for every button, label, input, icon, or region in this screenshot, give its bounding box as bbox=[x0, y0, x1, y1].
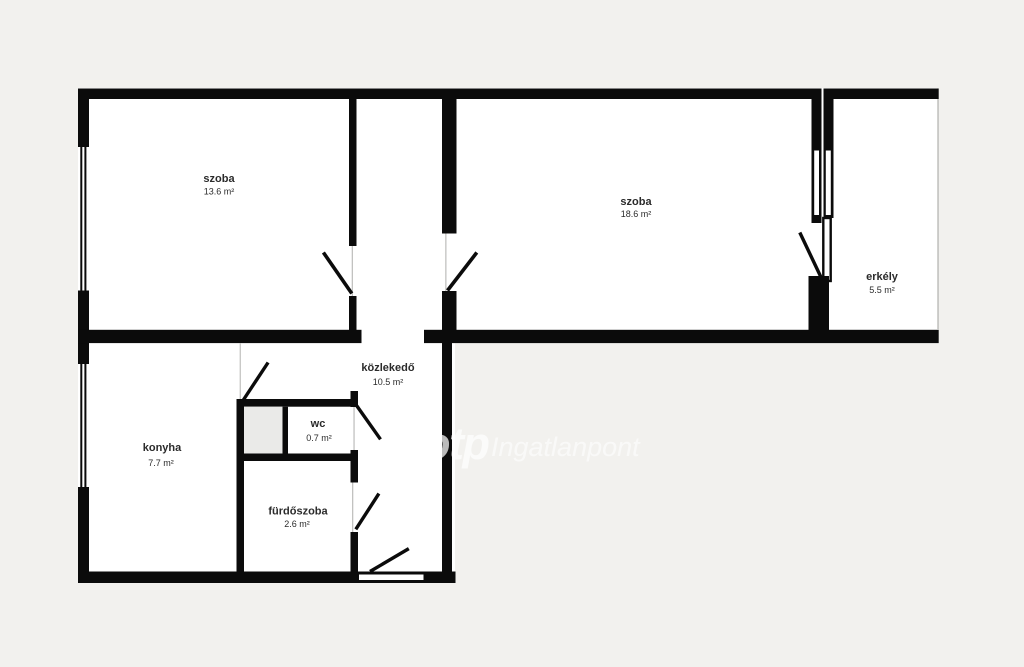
svg-text:18.6 m²: 18.6 m² bbox=[621, 209, 652, 219]
svg-text:közlekedő: közlekedő bbox=[361, 362, 414, 374]
svg-text:erkély: erkély bbox=[866, 271, 899, 283]
svg-text:2.6 m²: 2.6 m² bbox=[284, 519, 310, 529]
svg-text:szoba: szoba bbox=[620, 196, 652, 208]
svg-text:5.5 m²: 5.5 m² bbox=[869, 285, 895, 295]
svg-text:7.7 m²: 7.7 m² bbox=[148, 458, 174, 468]
svg-text:konyha: konyha bbox=[143, 442, 182, 454]
svg-text:13.6 m²: 13.6 m² bbox=[204, 187, 235, 197]
svg-text:wc: wc bbox=[310, 418, 326, 430]
svg-text:szoba: szoba bbox=[203, 173, 235, 185]
svg-text:otp: otp bbox=[423, 418, 489, 469]
svg-text:Ingatlanpont: Ingatlanpont bbox=[491, 432, 641, 462]
svg-text:fürdőszoba: fürdőszoba bbox=[268, 506, 328, 518]
svg-text:0.7 m²: 0.7 m² bbox=[306, 433, 332, 443]
svg-text:10.5 m²: 10.5 m² bbox=[373, 377, 404, 387]
